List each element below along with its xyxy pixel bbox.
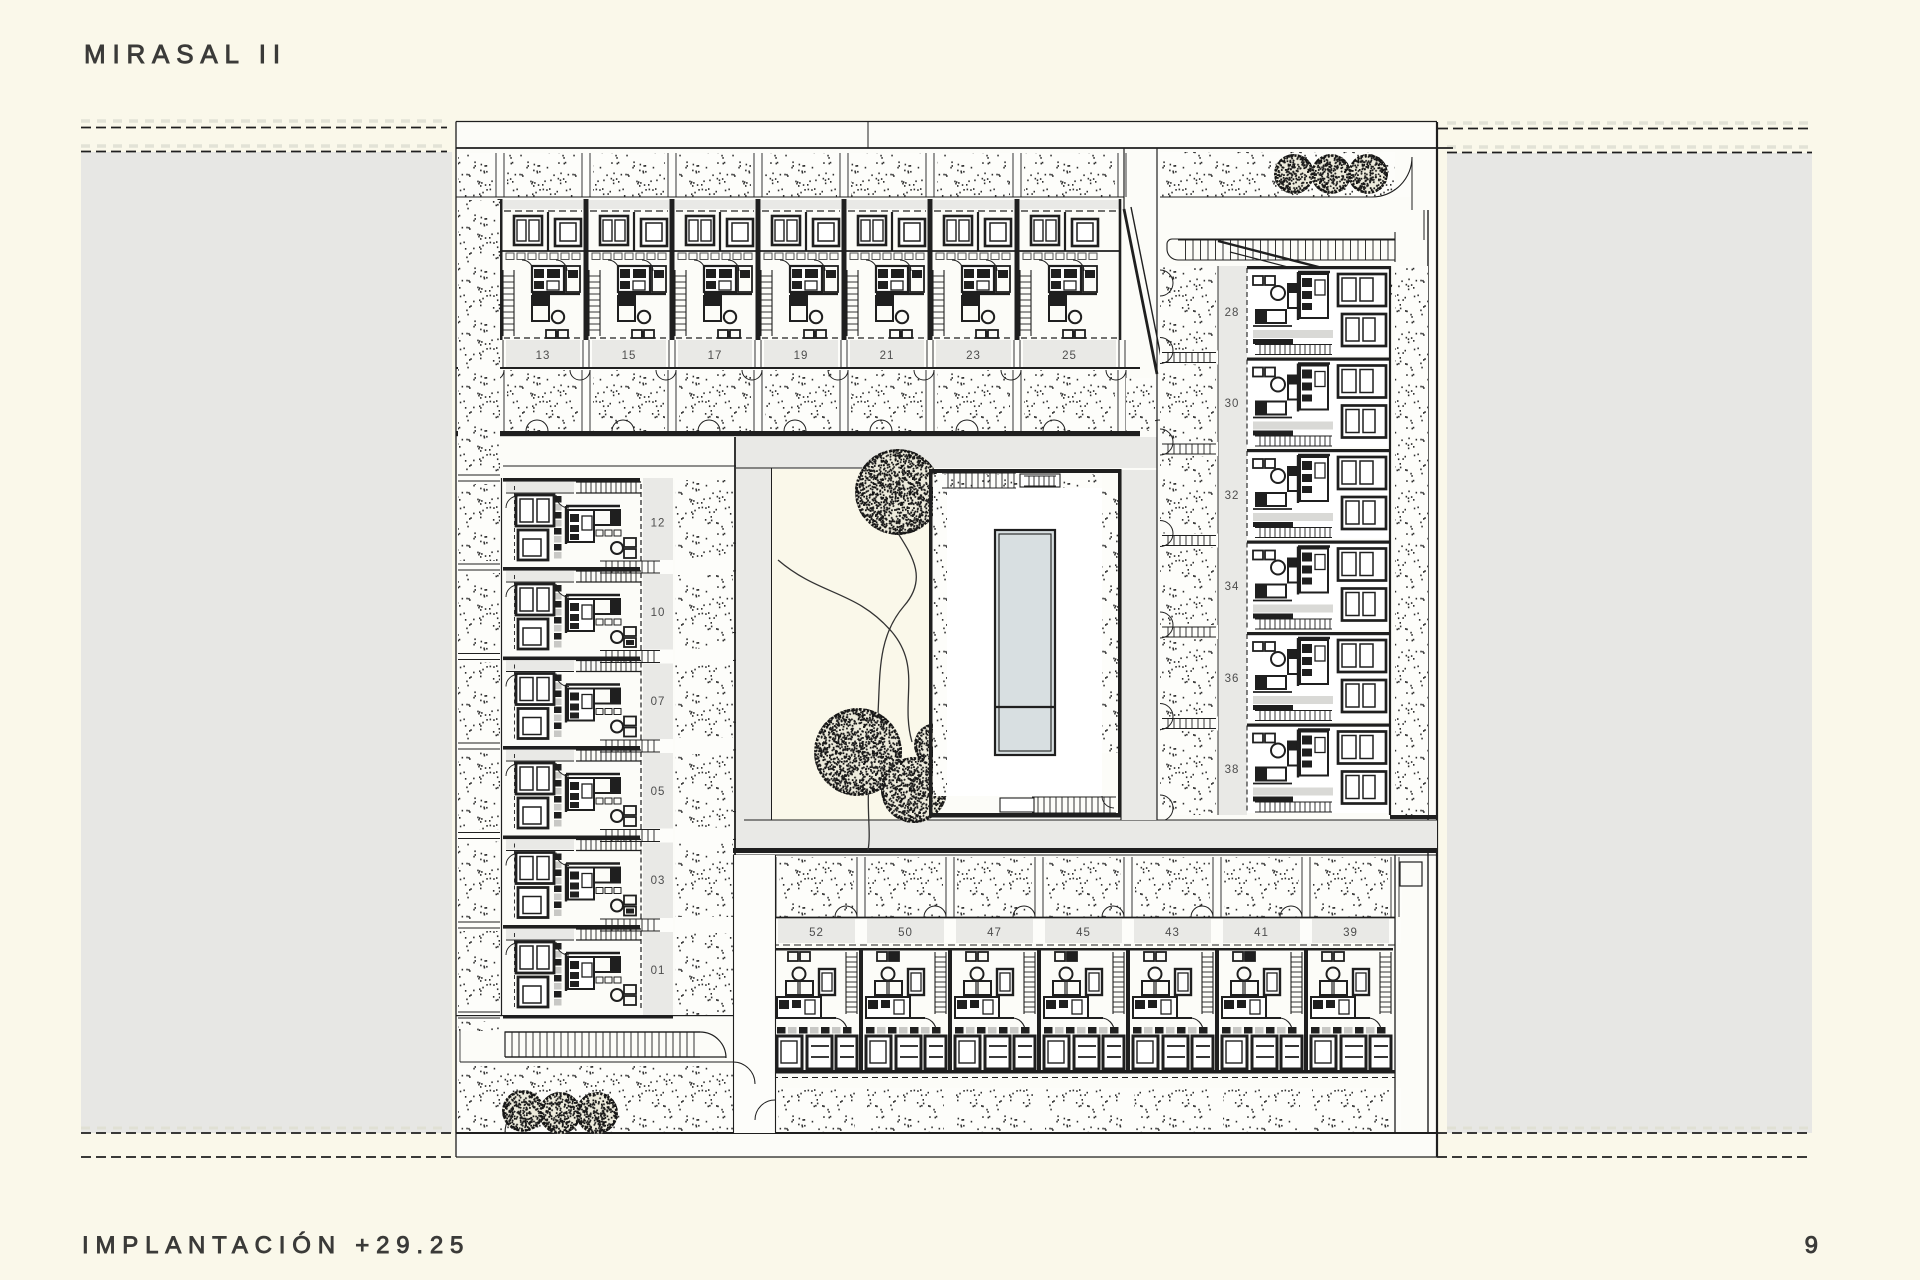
svg-text:52: 52: [809, 927, 824, 939]
svg-text:01: 01: [651, 965, 666, 977]
svg-text:32: 32: [1225, 490, 1240, 502]
svg-text:07: 07: [651, 696, 666, 708]
svg-text:9: 9: [1805, 1232, 1818, 1259]
svg-text:03: 03: [651, 875, 666, 887]
svg-text:50: 50: [898, 927, 913, 939]
svg-text:39: 39: [1343, 927, 1358, 939]
svg-text:15: 15: [622, 350, 637, 362]
svg-text:25: 25: [1062, 350, 1077, 362]
svg-text:12: 12: [651, 518, 666, 530]
svg-text:45: 45: [1076, 927, 1091, 939]
svg-text:43: 43: [1165, 927, 1180, 939]
svg-text:05: 05: [651, 786, 666, 798]
svg-text:28: 28: [1225, 307, 1240, 319]
svg-text:41: 41: [1254, 927, 1269, 939]
svg-text:13: 13: [536, 350, 551, 362]
svg-text:38: 38: [1225, 764, 1240, 776]
svg-text:34: 34: [1225, 581, 1240, 593]
svg-text:30: 30: [1225, 398, 1240, 410]
svg-text:MIRASAL II: MIRASAL II: [84, 39, 287, 69]
svg-text:IMPLANTACIÓN +29.25: IMPLANTACIÓN +29.25: [82, 1232, 470, 1259]
svg-text:47: 47: [987, 927, 1002, 939]
svg-text:19: 19: [794, 350, 809, 362]
svg-text:23: 23: [966, 350, 981, 362]
svg-text:36: 36: [1225, 673, 1240, 685]
svg-text:10: 10: [651, 607, 666, 619]
svg-text:17: 17: [708, 350, 723, 362]
svg-text:21: 21: [880, 350, 895, 362]
